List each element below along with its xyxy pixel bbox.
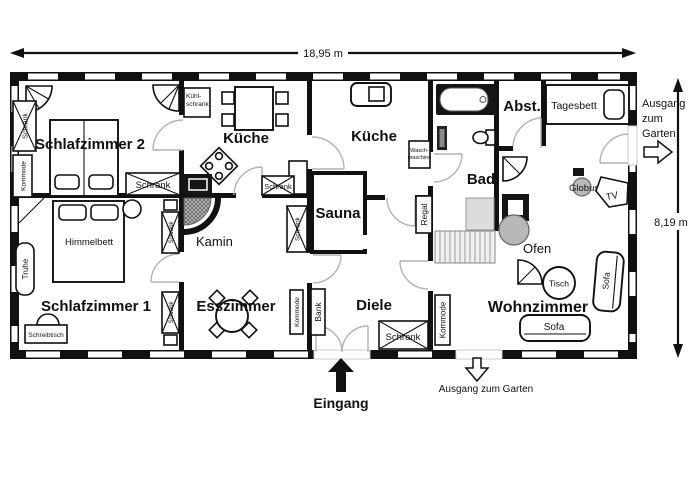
wardrobe-label: Schrank (169, 220, 175, 243)
floor-plan-page: 18,95 m 8,19 m (0, 0, 700, 500)
sofa-label: Sofa (544, 322, 565, 333)
wardrobe-label: Schrank (264, 182, 292, 191)
water-heater (437, 126, 447, 150)
bench-label: Bank (313, 302, 323, 322)
tv: TV (596, 177, 628, 207)
garden-exit-arrow-icon (466, 358, 488, 381)
room-label-wohnzimmer: Wohnzimmer (488, 299, 588, 316)
entrance-label: Eingang (313, 395, 368, 411)
chest-label: Truhe (21, 258, 30, 279)
sauna-door-gap (361, 235, 369, 249)
room-label-bad: Bad (467, 171, 495, 188)
oven-label: Ofen (523, 241, 551, 256)
sofa: Sofa (592, 251, 624, 312)
fridge: Kühl- schrank (184, 88, 210, 117)
width-dim-label: 18,95 m (303, 48, 343, 60)
dim-arrowhead-bottom (673, 344, 683, 358)
dresser: Kommode (435, 295, 450, 345)
wardrobe-label: Schrank (23, 113, 30, 139)
sofa-label: Sofa (600, 271, 612, 290)
room-label-kueche-rechts: Küche (351, 128, 397, 145)
floor-plan-svg: 18,95 m 8,19 m (0, 0, 700, 500)
chair (276, 114, 288, 126)
chest: Truhe (16, 243, 34, 295)
height-dim-label: 8,19 m (654, 217, 688, 229)
width-dimension: 18,95 m (10, 44, 636, 60)
dim-arrowhead-top (673, 78, 683, 92)
dresser-label: Kommode (439, 301, 448, 338)
sink (184, 174, 212, 195)
room-label-sauna: Sauna (315, 205, 361, 222)
garden-exit-opening-right (600, 126, 637, 165)
wardrobe: Schrank (126, 173, 180, 195)
wardrobe: Schrank (379, 321, 428, 349)
room-label-schlafzimmer1: Schlafzimmer 1 (41, 298, 151, 315)
shelf: Regal (416, 196, 432, 233)
kitchen-table (222, 87, 288, 130)
wardrobe: Schrank (162, 292, 179, 345)
coffee-table: Tisch (543, 267, 575, 299)
shelf-label: Regal (419, 203, 429, 225)
bench: Bank (311, 289, 325, 335)
garden-exit-arrow-icon (644, 141, 672, 163)
garden-exit-annotation-bottom: Ausgang zum Garten (439, 358, 534, 395)
fireplace: Kamin (184, 198, 233, 249)
wardrobe-label: Schrank (136, 180, 171, 191)
wardrobe: Schrank (287, 206, 307, 252)
room-sauna: Sauna (312, 173, 369, 252)
washing-machine-label-line2: maschine (408, 155, 432, 161)
wardrobe-label: Schrank (169, 300, 175, 323)
day-bed: Tagesbett (546, 85, 629, 124)
sofa: Sofa (520, 315, 590, 341)
wardrobe-label: Schrank (295, 216, 302, 241)
day-bed-label: Tagesbett (551, 100, 597, 112)
oven: Ofen (499, 194, 551, 256)
coffee-table-label: Tisch (549, 279, 569, 289)
plant (123, 200, 141, 218)
corner-shelf (19, 198, 44, 223)
room-label-kueche-links: Küche (223, 130, 269, 147)
room-label-abstellraum: Abst. (503, 98, 541, 115)
dresser: Kommode (13, 155, 32, 197)
chair (222, 92, 234, 104)
fridge-label-line2: schrank (186, 101, 210, 108)
room-esszimmer: Kamin Schrank Esszimmer Kommode (184, 198, 307, 338)
chair (276, 92, 288, 104)
washing-machine-label-line1: Wasch- (410, 148, 429, 154)
room-schlafzimmer1: Himmelbett Truhe Schlafzimmer 1 Schreibt… (16, 198, 179, 345)
canopy-bed: Himmelbett (53, 201, 124, 282)
room-label-esszimmer: Esszimmer (196, 298, 275, 315)
garden-exit-label-line1: Ausgang (642, 98, 685, 110)
entrance-arrow-icon (328, 358, 354, 392)
room-kueche-links: Kühl- schrank Küche Schrank (184, 87, 307, 195)
toilet (473, 130, 495, 145)
garden-exit-label: Ausgang zum Garten (439, 384, 534, 395)
double-bed (50, 120, 118, 196)
sink-unit (351, 83, 391, 106)
wardrobe: Schrank (13, 101, 36, 151)
room-abstellraum: Abst. (503, 98, 541, 115)
entrance-annotation: Eingang (313, 358, 368, 411)
dim-arrowhead-right (622, 48, 636, 58)
dresser-label: Kommode (294, 297, 301, 327)
globe-label: Globus (569, 183, 599, 194)
chair (222, 114, 234, 126)
canopy-bed-label: Himmelbett (65, 237, 113, 248)
dim-arrowhead-left (10, 48, 24, 58)
wardrobe: Schrank (262, 176, 294, 195)
dresser: Kommode (290, 290, 303, 334)
desk-chair (37, 314, 59, 325)
fridge-label-line1: Kühl- (186, 93, 201, 100)
wardrobe-label: Schrank (386, 332, 421, 343)
dresser-label: Kommode (21, 161, 28, 191)
desk-label: Schreibtisch (28, 332, 64, 339)
room-bad: Bad (436, 84, 496, 188)
garden-exit-label-line3: Garten (642, 128, 676, 140)
desk: Schreibtisch (25, 314, 67, 343)
globe: Globus (569, 168, 599, 196)
washing-machine: Wasch- maschine (408, 141, 432, 168)
wardrobe: Schrank (162, 200, 179, 253)
room-label-schlafzimmer2: Schlafzimmer 2 (35, 136, 145, 153)
room-label-diele: Diele (356, 297, 392, 314)
room-wohnzimmer: Tagesbett Globus TV Ofen Tisch Sofa (435, 85, 629, 345)
stairs (435, 198, 495, 263)
garden-exit-label-line2: zum (642, 113, 663, 125)
room-kueche-rechts: Küche Wasch- maschine (351, 83, 431, 168)
bathtub (436, 84, 496, 115)
fireplace-label: Kamin (196, 234, 233, 249)
